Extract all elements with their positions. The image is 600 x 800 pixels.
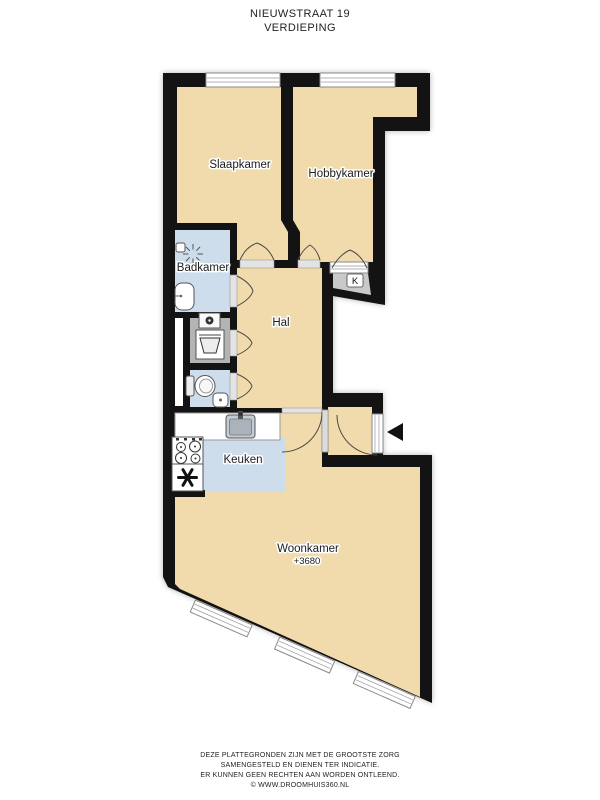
washing-machine-icon — [196, 330, 224, 359]
label-hobbykamer: Hobbykamer — [308, 168, 373, 180]
label-slaapkamer: Slaapkamer — [209, 159, 271, 171]
page-title-address: NIEUWSTRAAT 19 — [250, 8, 350, 20]
room-vestibule — [328, 407, 372, 455]
room-hal — [237, 268, 322, 408]
shaft-void — [175, 318, 183, 406]
label-hal: Hal — [272, 317, 289, 329]
asterisk-icon — [172, 464, 203, 491]
window-top-right — [320, 73, 395, 87]
svg-text:K: K — [352, 276, 359, 287]
label-woonkamer: Woonkamer — [277, 543, 339, 555]
label-keuken: Keuken — [223, 454, 262, 466]
entrance-arrow-icon — [387, 423, 403, 441]
hand-sink-icon — [213, 393, 228, 407]
floorplan-page: NIEUWSTRAAT 19 VERDIEPING — [0, 0, 600, 800]
toilet-icon — [186, 376, 215, 397]
footer-line-4: © WWW.DROOMHUIS360.NL — [251, 781, 350, 789]
label-kast: K — [347, 274, 363, 287]
threshold-hal-woonkamer-door — [282, 408, 322, 413]
floorplan-canvas: NIEUWSTRAAT 19 VERDIEPING — [0, 0, 600, 800]
footer-line-1: DEZE PLATTEGRONDEN ZIJN MET DE GROOTSTE … — [200, 752, 400, 759]
sink-icon — [175, 283, 194, 310]
threshold-slaapkamer-door — [240, 260, 274, 268]
threshold-toilet-door — [230, 373, 237, 400]
threshold-hobbykamer-door — [298, 260, 320, 268]
kitchen-sink-icon — [226, 411, 255, 438]
threshold-washer-door — [230, 330, 237, 356]
window-top-left — [206, 73, 280, 87]
kast-hatch — [330, 262, 368, 273]
front-door — [372, 414, 383, 453]
page-title-floor: VERDIEPING — [264, 22, 336, 34]
footer-line-2: SAMENGESTELD EN DIENEN TER INDICATIE. — [221, 762, 380, 769]
label-woonkamer-level: +3680 — [294, 556, 321, 567]
footer-line-3: ER KUNNEN GEEN RECHTEN AAN WORDEN ONTLEE… — [200, 772, 399, 779]
boiler-icon — [199, 313, 220, 328]
label-badkamer: Badkamer — [177, 262, 230, 274]
vestibule-glass-panel — [322, 410, 328, 452]
stove-icon — [172, 437, 203, 464]
threshold-badkamer-door — [230, 275, 237, 307]
